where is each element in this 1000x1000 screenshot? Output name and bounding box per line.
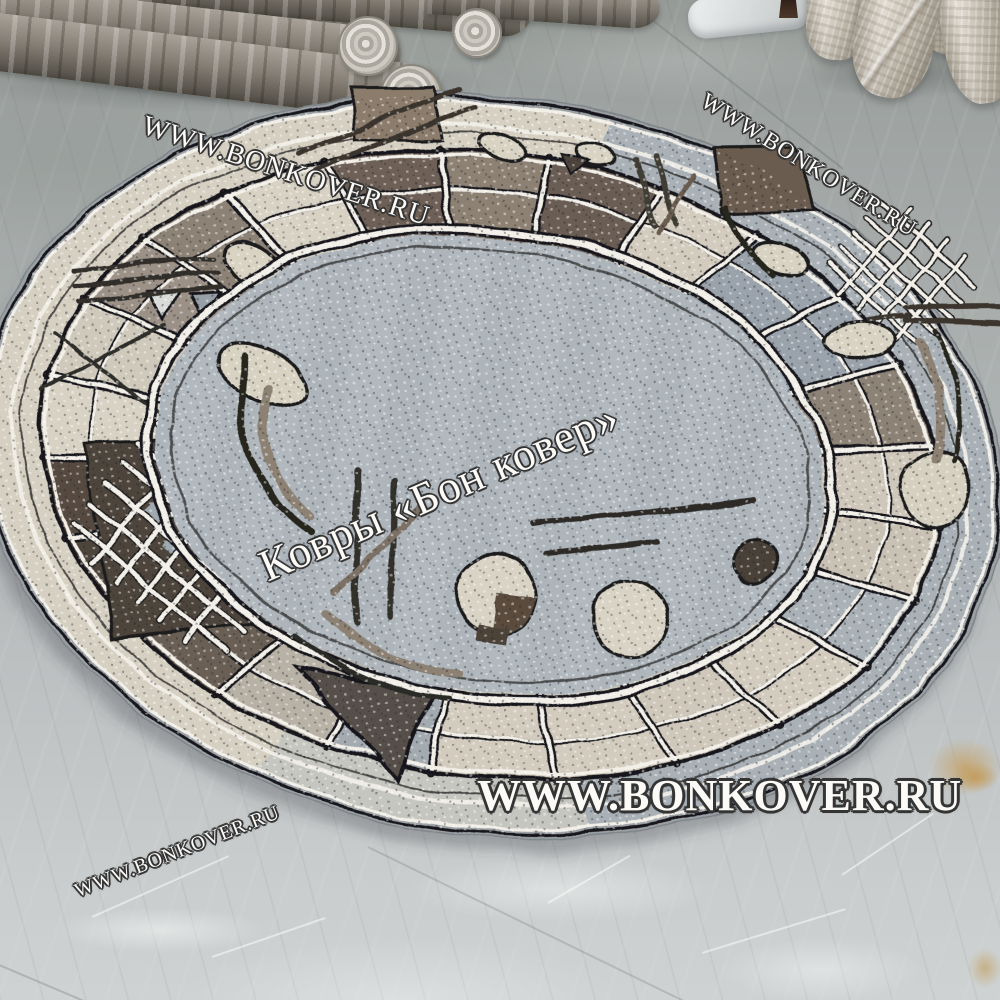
watermark-bottom-main: WWW.BONKOVER.RU [477,770,962,821]
showroom-photo: WWW.BONKOVER.RU WWW.BONKOVER.RU Ковры «Б… [0,0,1000,1000]
